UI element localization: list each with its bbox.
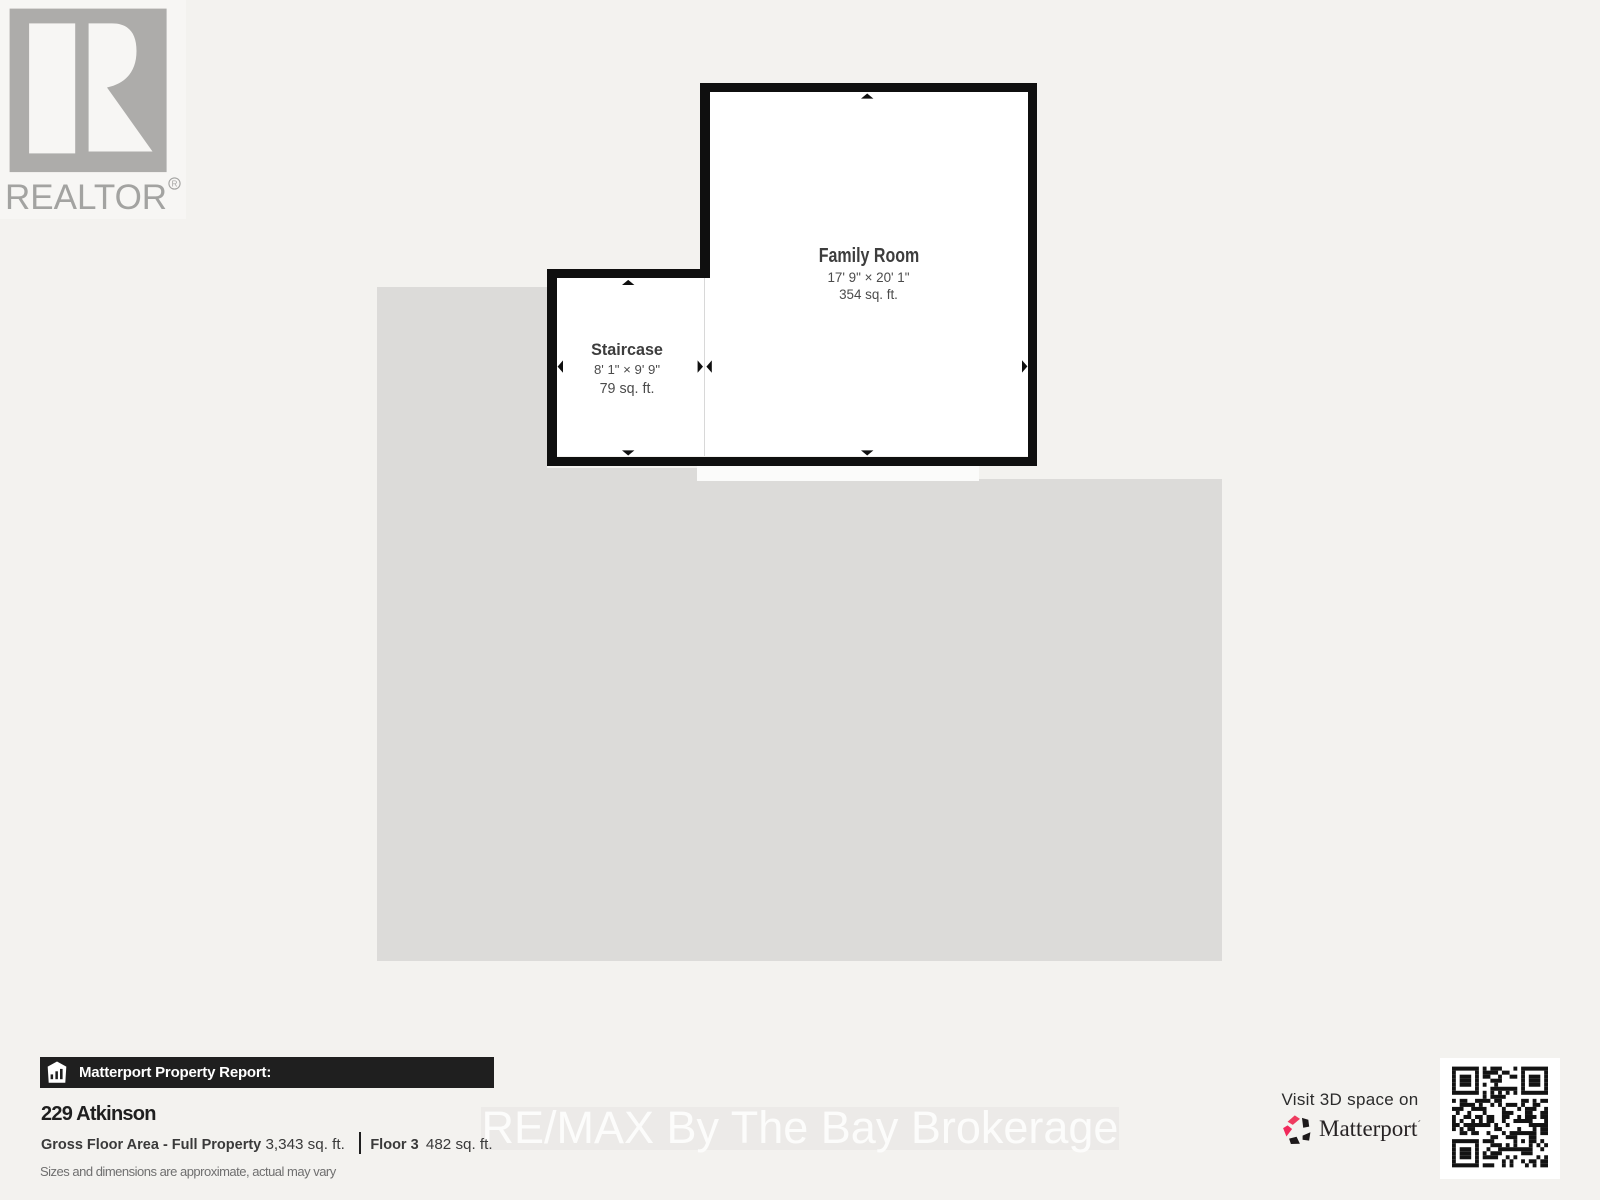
svg-text:R: R bbox=[172, 179, 178, 188]
